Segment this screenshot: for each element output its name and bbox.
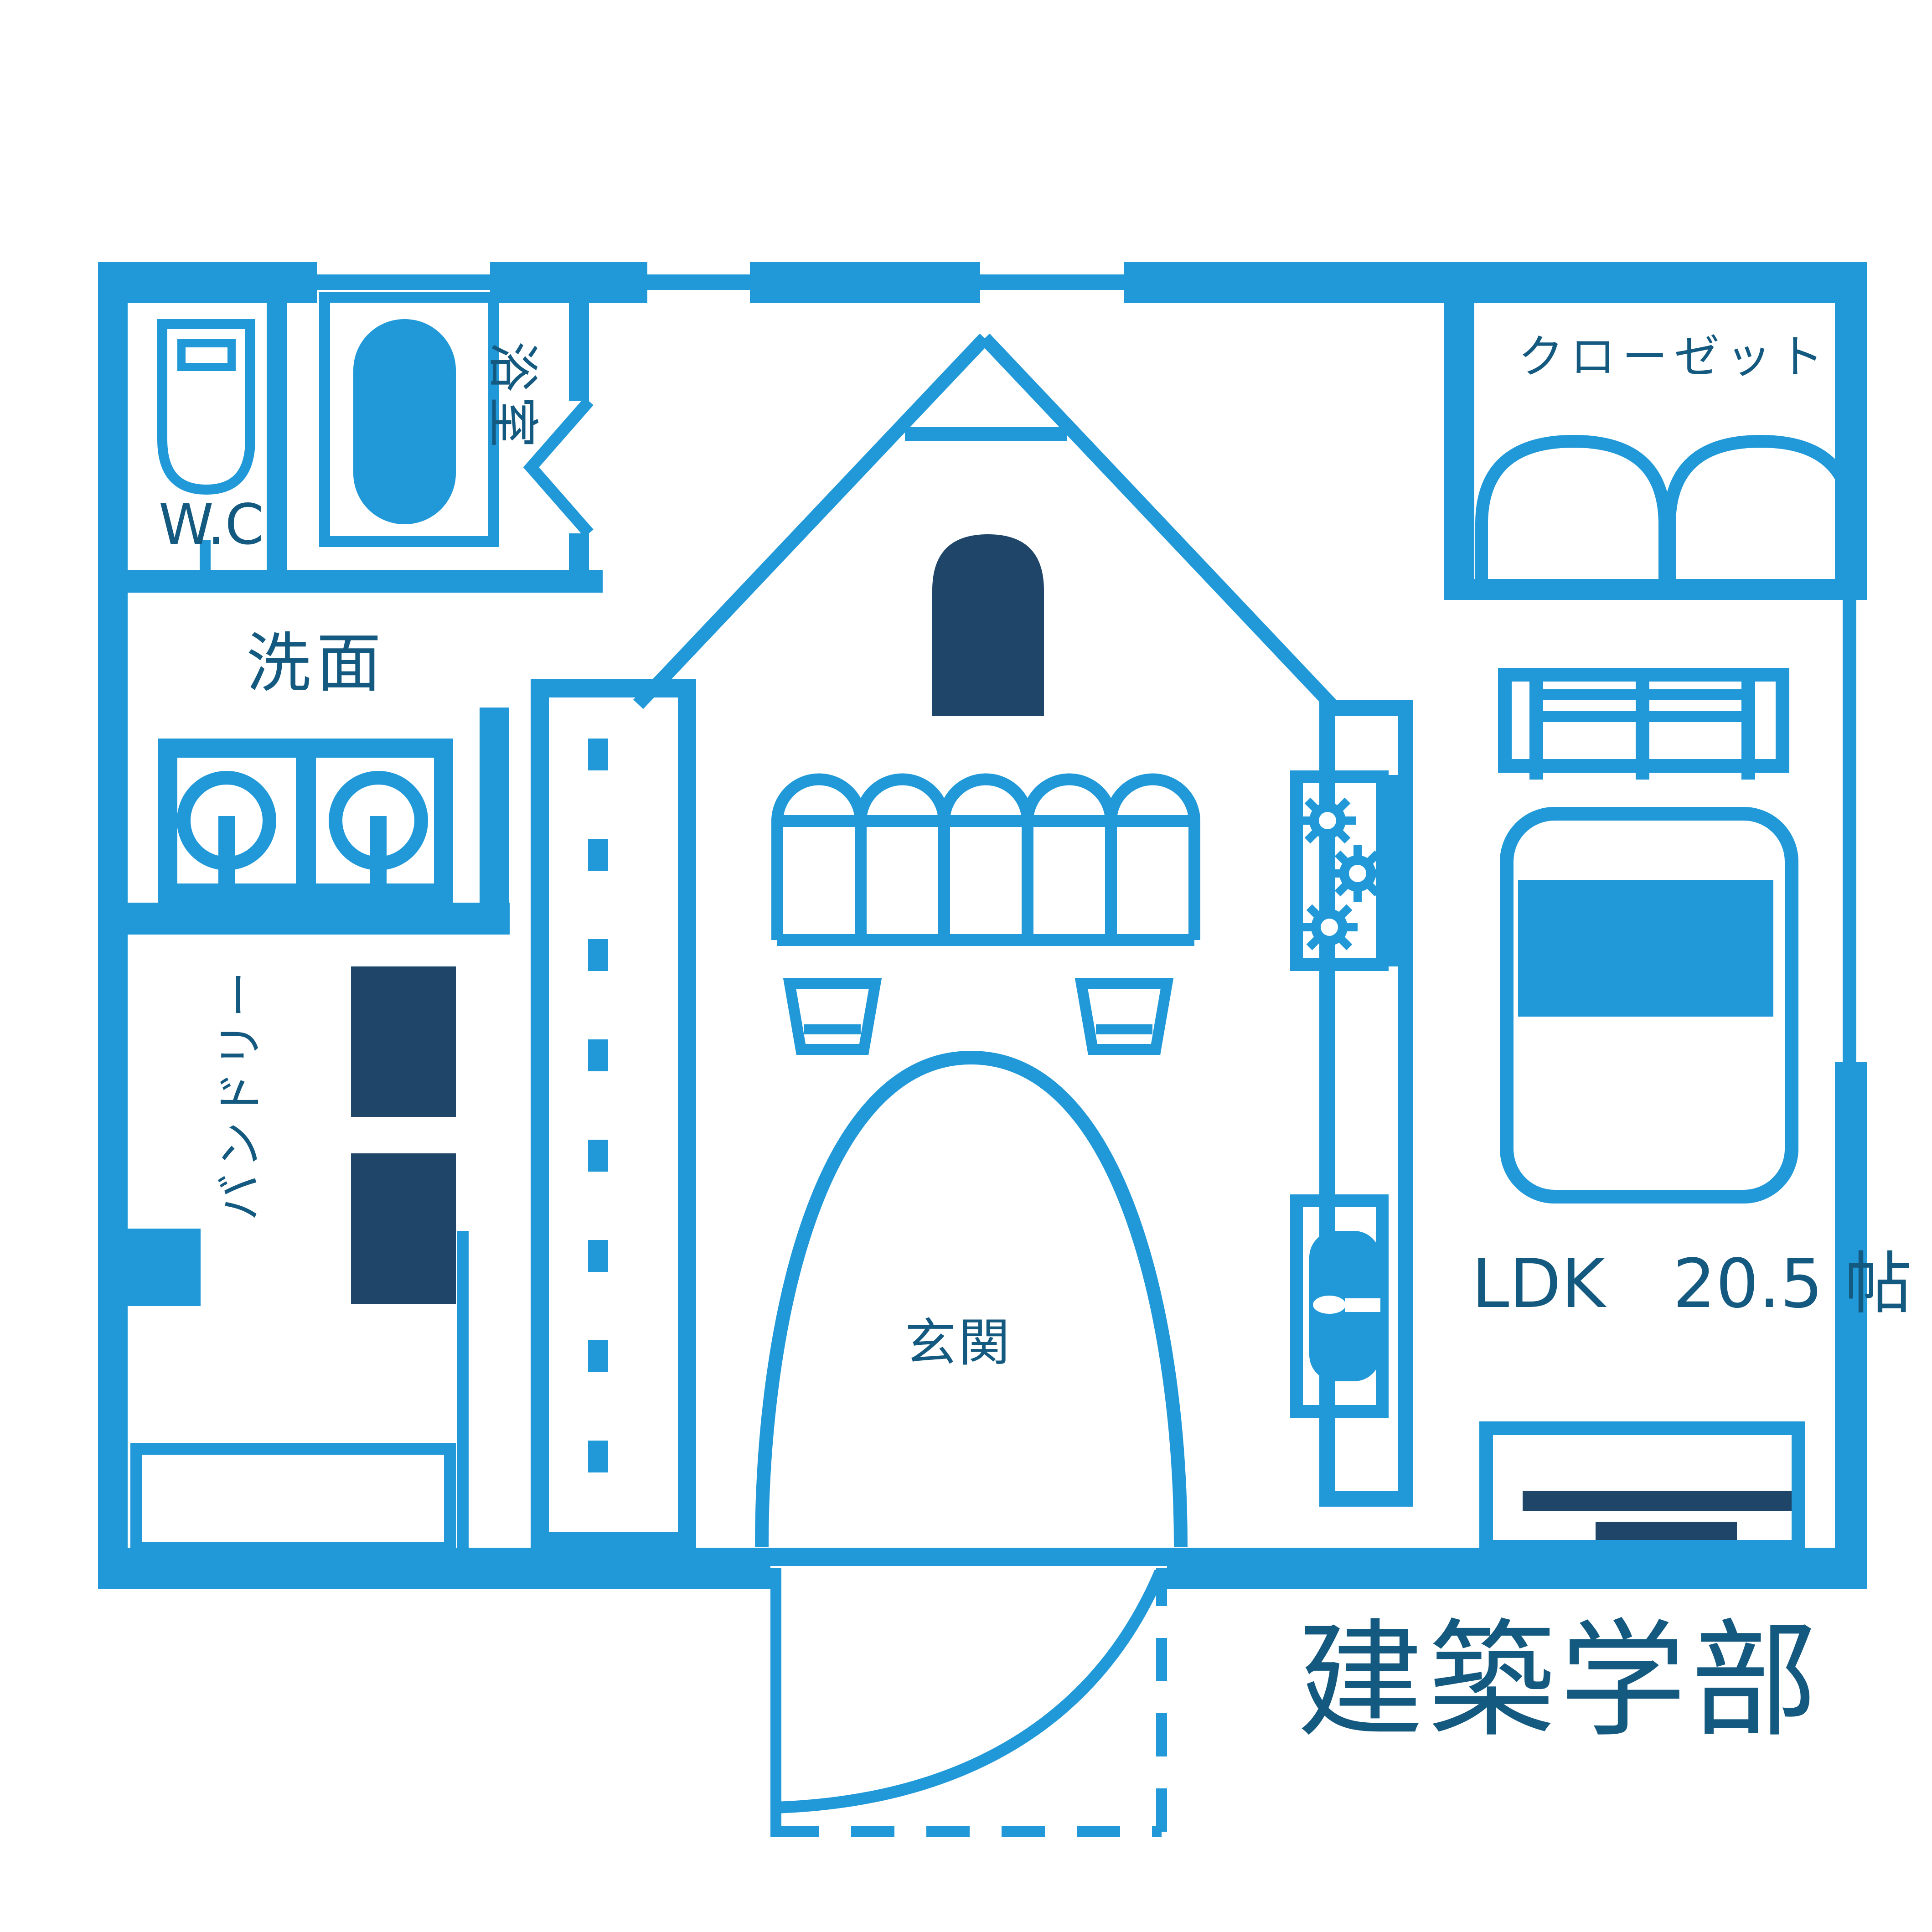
kitchen — [1297, 708, 1409, 1499]
stove-burners-icon — [1297, 775, 1409, 966]
floor-plan-canvas: W.C 浴室 洗面 バンドリー クローゼット 玄関 LDK 20.5 帖 建築学… — [0, 0, 1932, 1932]
toilet-icon — [162, 324, 250, 490]
entrance-threshold — [770, 1548, 1167, 1566]
hallway — [540, 688, 687, 1541]
double-door-icon — [1482, 441, 1852, 579]
top-window-1 — [317, 274, 490, 290]
laundry-machines — [351, 966, 456, 1304]
wc-label: W.C — [159, 497, 264, 553]
closet-left-wall — [1444, 303, 1474, 599]
window-icon — [1505, 668, 1782, 780]
awning-icon — [777, 780, 1194, 940]
tv-board-icon — [1486, 1428, 1798, 1547]
washer-square-icon — [351, 966, 456, 1117]
burner-gear-icon — [1301, 899, 1358, 956]
vanity-counter — [168, 739, 444, 903]
storage-room-outline — [136, 1449, 450, 1548]
door-swing-icon — [776, 1568, 1162, 1837]
lamp-icon — [790, 983, 875, 1049]
tv-screen — [1523, 1491, 1792, 1511]
top-window-3 — [980, 274, 1124, 290]
wc-right-wall — [267, 303, 287, 593]
closet-label: クローゼット — [1518, 334, 1830, 380]
lamp-icon — [1081, 983, 1167, 1049]
burner-gear-icon — [1329, 845, 1386, 902]
wc-bath-bottom-wall — [128, 570, 603, 593]
laundry-label: バンドリー — [217, 921, 272, 1267]
washer-square-icon — [351, 1153, 456, 1304]
caption-title: 建築学部 — [1297, 1617, 1822, 1744]
sink-icon — [336, 778, 421, 889]
washroom-label: 洗面 — [246, 631, 387, 696]
bed-blanket — [1518, 880, 1773, 1017]
bed-icon — [1507, 814, 1792, 1197]
bathroom-label: 浴室 — [483, 319, 538, 474]
laundry-top-wall — [98, 903, 510, 935]
bath-right-wall-lower — [569, 533, 589, 593]
closet-bottom-wall — [1444, 579, 1867, 600]
entrance-label: 玄関 — [905, 1317, 1012, 1369]
bath-right-wall-upper — [569, 303, 589, 401]
right-window — [1843, 593, 1856, 1062]
interior-walls — [98, 303, 603, 1548]
kitchen-sink-icon — [1297, 1201, 1382, 1411]
bathtub-icon — [325, 297, 494, 542]
storage-right-wall — [457, 1231, 469, 1548]
hallway-outline — [540, 688, 687, 1541]
top-window-2 — [647, 274, 750, 290]
sink-icon — [184, 778, 269, 889]
washroom-right-wall — [480, 708, 509, 903]
burner-gear-icon — [1299, 792, 1356, 849]
arch-door-icon — [762, 1058, 1181, 1547]
arched-window-icon — [932, 534, 1044, 716]
tv-stand — [1596, 1522, 1737, 1540]
ldk-area-label: LDK 20.5 帖 — [1472, 1250, 1912, 1317]
laundry-wall-stub — [128, 1229, 201, 1306]
